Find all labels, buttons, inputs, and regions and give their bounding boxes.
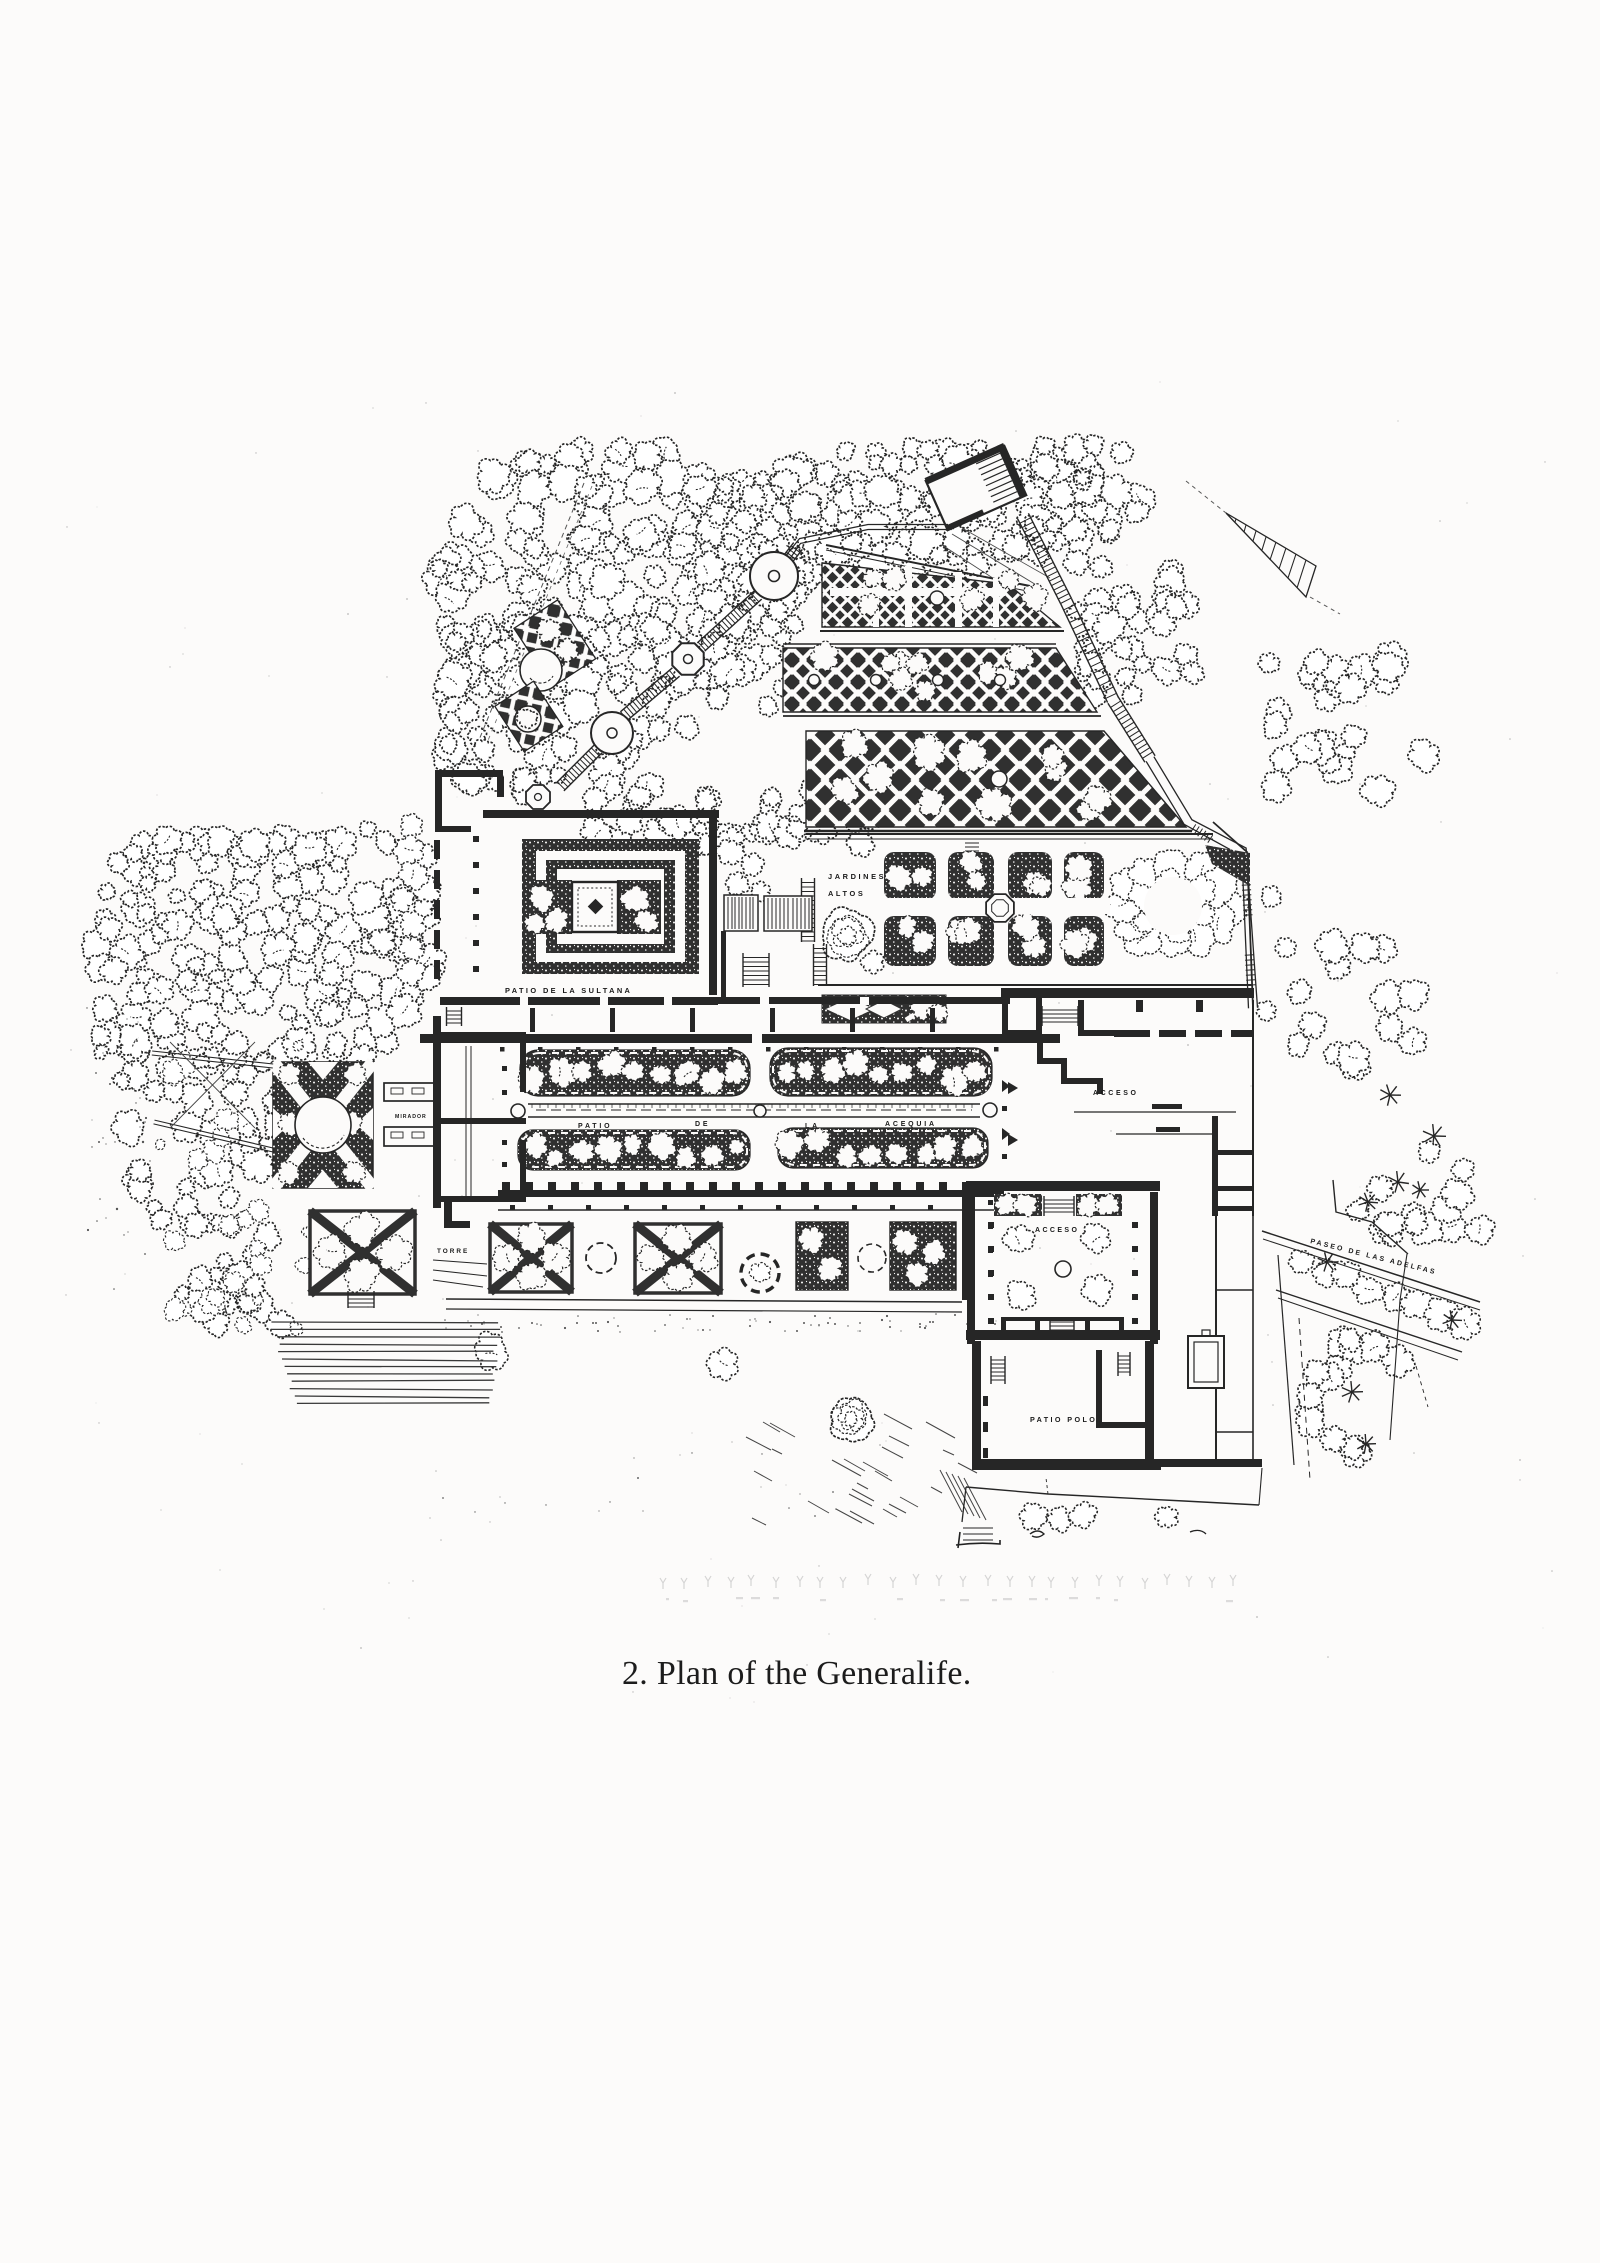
- svg-text:MIRADOR: MIRADOR: [395, 1114, 427, 1120]
- svg-text:PATIO DE LA SULTANA: PATIO DE LA SULTANA: [505, 986, 632, 995]
- svg-text:ACCESO: ACCESO: [1093, 1090, 1139, 1097]
- svg-text:2. Plan of the Generalife.: 2. Plan of the Generalife.: [622, 1655, 972, 1692]
- svg-text:PATIO POLO: PATIO POLO: [1030, 1415, 1097, 1424]
- svg-text:TORRE: TORRE: [437, 1248, 469, 1255]
- svg-text:PATIO: PATIO: [578, 1123, 612, 1130]
- svg-text:ACCESO: ACCESO: [1035, 1227, 1079, 1234]
- svg-text:ALTOS: ALTOS: [828, 889, 865, 898]
- svg-text:ACEQUIA: ACEQUIA: [885, 1121, 937, 1128]
- svg-text:JARDINES: JARDINES: [828, 872, 886, 881]
- svg-text:DE: DE: [695, 1121, 710, 1128]
